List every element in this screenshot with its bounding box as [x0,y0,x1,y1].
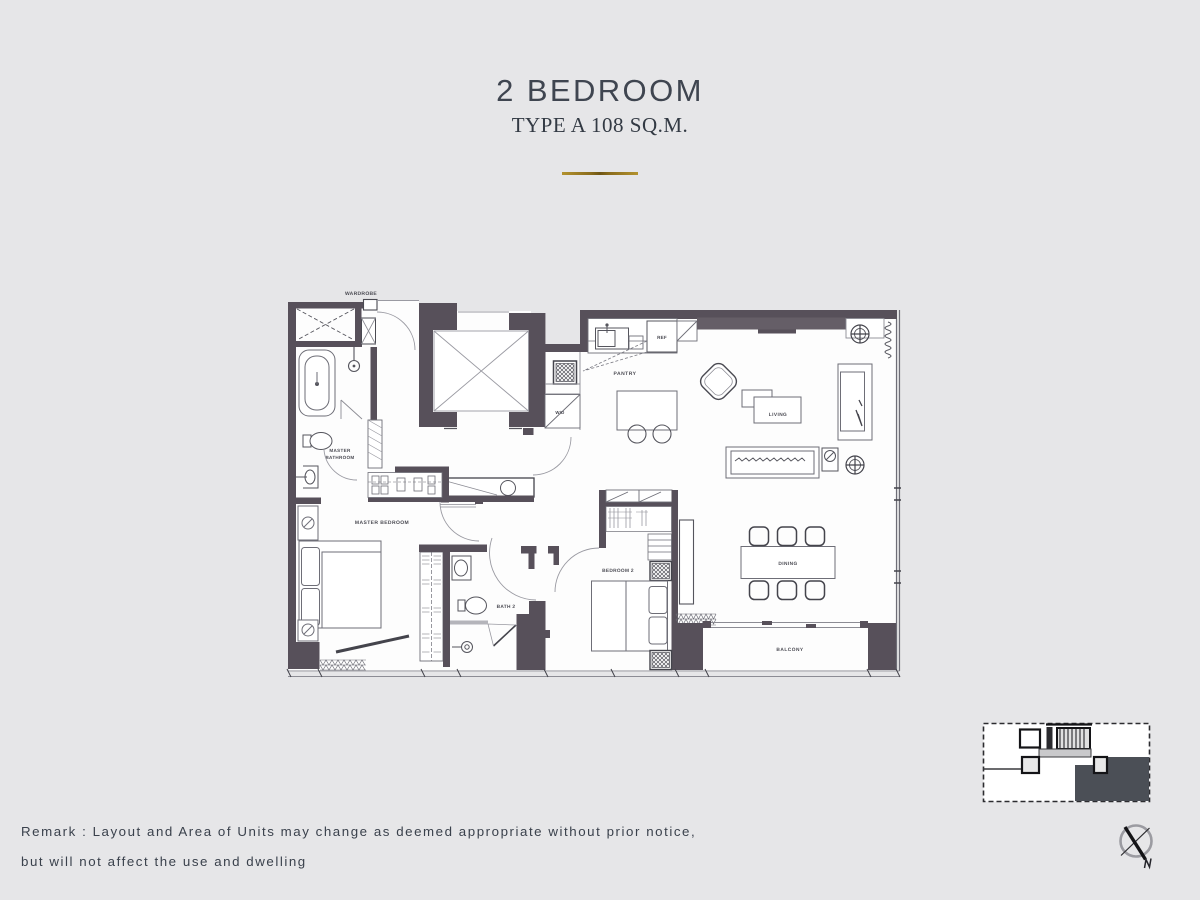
svg-text:WARDROBE: WARDROBE [345,291,377,297]
svg-text:LIVING: LIVING [769,412,787,418]
svg-text:MASTER BEDROOM: MASTER BEDROOM [355,520,409,526]
svg-text:BALCONY: BALCONY [776,647,804,653]
svg-text:REF: REF [657,335,667,340]
svg-text:BATHROOM: BATHROOM [325,455,354,460]
svg-text:W/D: W/D [555,410,564,415]
svg-text:MASTER: MASTER [329,448,351,453]
svg-text:BEDROOM 2: BEDROOM 2 [602,568,634,574]
svg-text:DINING: DINING [778,561,797,567]
svg-text:PANTRY: PANTRY [614,371,637,377]
svg-text:BATH 2: BATH 2 [497,604,516,610]
